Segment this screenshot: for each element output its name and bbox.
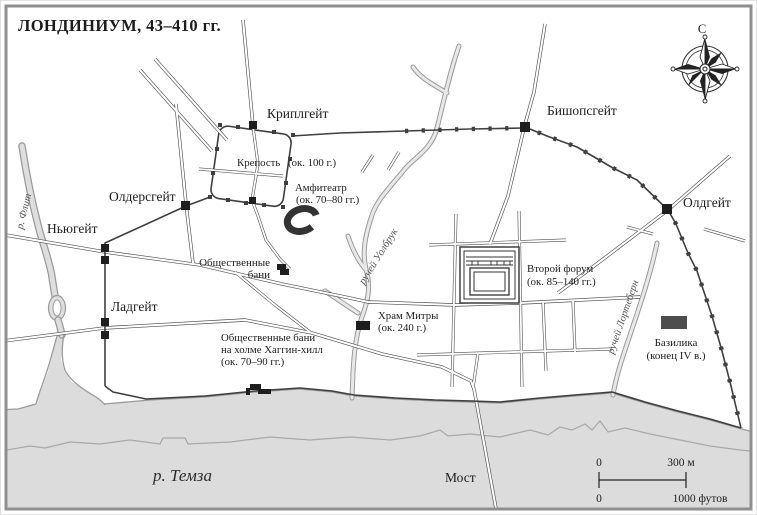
gate-marker-aldgate (662, 204, 672, 214)
compass-north-label: С (698, 22, 706, 36)
mithras-temple-icon (356, 321, 370, 330)
label-huggin-1: Общественные бани (221, 332, 315, 344)
label-ludgate: Ладгейт (111, 299, 158, 314)
scale-meters-zero: 0 (596, 457, 602, 469)
thames-river (0, 389, 757, 515)
gate-marker-newgate-south (101, 256, 109, 264)
label-newgate: Ньюгейт (47, 221, 98, 236)
thames-water (0, 389, 757, 515)
gate-markers (101, 121, 672, 339)
scale-feet-zero: 0 (596, 493, 602, 505)
gate-marker-fortress-south (249, 197, 256, 204)
label-fortress-date: (ок. 100 г.) (288, 157, 336, 169)
label-huggin-2: на холме Хаггин-хилл (221, 344, 323, 356)
label-bridge: Мост (445, 470, 476, 485)
gate-marker-ludgate (101, 318, 109, 326)
fleet-river (22, 146, 105, 412)
label-mithras-date: (ок. 240 г.) (378, 322, 426, 334)
scale-meters-max: 300 м (667, 457, 695, 469)
page-title: ЛОНДИНИУМ, 43–410 гг. (18, 16, 221, 35)
basilica-icon (661, 316, 687, 329)
huggin-hill-baths-icon (246, 384, 271, 395)
label-amphitheatre-date: (ок. 70–80 гг.) (296, 194, 360, 206)
amphitheatre-icon (284, 205, 319, 235)
second-forum-building (460, 247, 519, 303)
label-thames: р. Темза (152, 466, 212, 485)
label-basilica-date: (конец IV в.) (646, 350, 705, 362)
label-forum-name: Второй форум (527, 263, 593, 275)
gate-marker-ludgate-south (101, 331, 109, 339)
londinium-map: 0 300 м 0 1000 футов ЛОНДИНИУМ, 43–410 г… (0, 0, 757, 515)
label-cripplegate: Криплгейт (267, 106, 329, 121)
wall-west (105, 197, 210, 386)
walbrook-stream (325, 46, 459, 398)
londinium-map-page: 0 300 м 0 1000 футов ЛОНДИНИУМ, 43–410 г… (0, 0, 757, 515)
label-mithras-name: Храм Митры (378, 310, 438, 322)
gate-marker-aldersgate (181, 201, 190, 210)
fleet-island (53, 300, 61, 316)
gate-marker-newgate (101, 244, 109, 252)
label-basilica-name: Базилика (655, 337, 698, 349)
gate-marker-bishopsgate (520, 122, 530, 132)
label-forum-date: (ок. 85–140 гг.) (527, 276, 596, 288)
city-wall (101, 121, 741, 428)
scale-feet-max: 1000 футов (673, 493, 728, 505)
label-bishopsgate: Бишопсгейт (547, 103, 617, 118)
label-public-baths-1: Общественные (199, 257, 270, 269)
label-huggin-3: (ок. 70–90 гг.) (221, 356, 285, 368)
label-aldgate: Олдгейт (683, 195, 731, 210)
compass-rose-icon (671, 35, 739, 103)
label-amphitheatre-name: Амфитеатр (295, 182, 347, 194)
gate-marker-cripplegate (249, 121, 257, 129)
label-aldersgate: Олдерсгейт (109, 189, 176, 204)
label-fortress-name: Крепость (237, 157, 280, 169)
label-public-baths-2: бани (248, 269, 270, 281)
